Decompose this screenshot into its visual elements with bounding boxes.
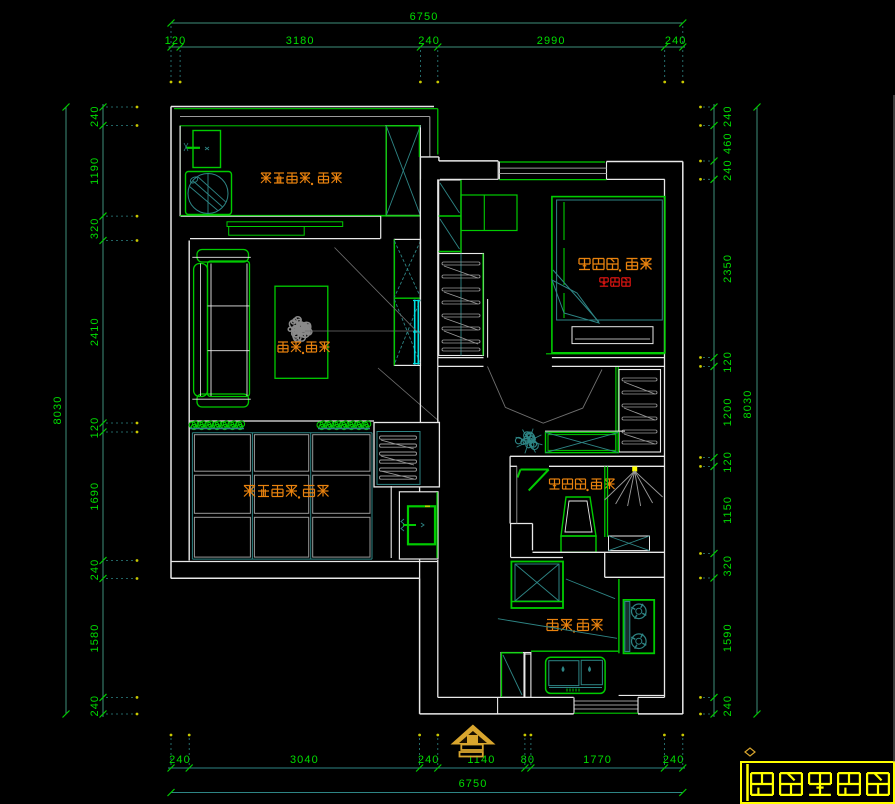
svg-text:3180: 3180: [286, 35, 315, 47]
svg-text:120: 120: [89, 417, 101, 439]
svg-text:240: 240: [418, 754, 440, 766]
svg-text:460: 460: [722, 132, 734, 154]
svg-text:1770: 1770: [583, 754, 612, 766]
svg-text:320: 320: [89, 217, 101, 239]
svg-text:80: 80: [521, 754, 535, 766]
svg-text:240: 240: [169, 754, 191, 766]
svg-text:240: 240: [89, 105, 101, 127]
svg-text:240: 240: [663, 754, 685, 766]
svg-text:2350: 2350: [722, 254, 734, 283]
svg-text:320: 320: [722, 555, 734, 577]
svg-text:1150: 1150: [722, 496, 734, 524]
svg-text:240: 240: [665, 35, 687, 47]
svg-text:120: 120: [722, 451, 734, 473]
svg-text:120: 120: [722, 351, 734, 373]
svg-text:240: 240: [418, 35, 440, 47]
svg-text:240: 240: [89, 559, 101, 581]
svg-text:240: 240: [89, 695, 101, 717]
svg-text:2410: 2410: [89, 317, 101, 346]
svg-text:1200: 1200: [722, 397, 734, 426]
svg-text:6750: 6750: [410, 11, 439, 23]
svg-text:2990: 2990: [537, 35, 566, 47]
svg-text:1580: 1580: [89, 624, 101, 653]
svg-text:1190: 1190: [89, 157, 101, 185]
svg-text:120: 120: [165, 35, 187, 47]
svg-text:240: 240: [722, 105, 734, 127]
svg-text:1590: 1590: [722, 623, 734, 652]
svg-text:8030: 8030: [742, 390, 754, 419]
svg-text:6750: 6750: [459, 778, 488, 790]
svg-text:3040: 3040: [290, 754, 319, 766]
svg-text:240: 240: [722, 159, 734, 181]
svg-text:8030: 8030: [52, 396, 64, 425]
svg-text:1690: 1690: [89, 482, 101, 511]
svg-text:240: 240: [722, 695, 734, 717]
